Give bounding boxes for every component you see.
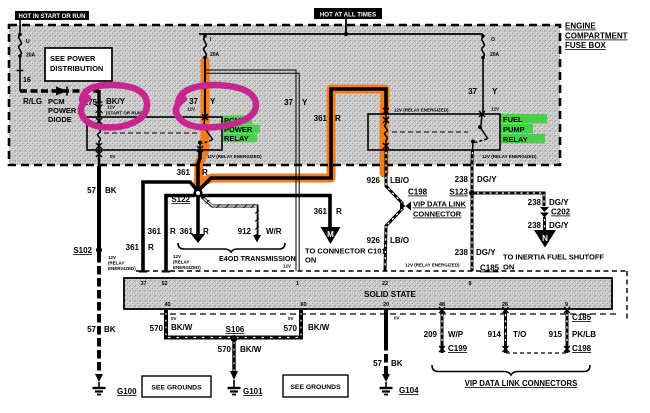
svg-text:12V (RELAY ENERGIZED): 12V (RELAY ENERGIZED) bbox=[207, 154, 262, 159]
svg-text:S122: S122 bbox=[171, 195, 190, 204]
svg-text:BK/W: BK/W bbox=[308, 323, 330, 332]
svg-text:37: 37 bbox=[468, 87, 477, 96]
svg-text:22: 22 bbox=[382, 281, 388, 287]
svg-text:TO CONNECTOR C101: TO CONNECTOR C101 bbox=[305, 247, 386, 256]
svg-text:R: R bbox=[148, 243, 154, 252]
svg-text:37: 37 bbox=[284, 98, 293, 107]
svg-text:209: 209 bbox=[424, 330, 438, 339]
svg-text:G104: G104 bbox=[399, 386, 419, 395]
svg-text:HOT AT ALL TIMES: HOT AT ALL TIMES bbox=[320, 12, 376, 19]
svg-text:C202: C202 bbox=[551, 208, 571, 217]
svg-text:VIP DATA LINK: VIP DATA LINK bbox=[413, 200, 467, 209]
svg-text:361: 361 bbox=[314, 114, 328, 123]
svg-text:361: 361 bbox=[180, 227, 194, 236]
svg-text:W/P: W/P bbox=[448, 330, 464, 339]
svg-text:37: 37 bbox=[140, 281, 146, 287]
svg-text:57: 57 bbox=[373, 359, 382, 368]
svg-text:Y: Y bbox=[492, 87, 498, 96]
svg-text:DIODE: DIODE bbox=[48, 115, 72, 124]
svg-text:SEE GROUNDS: SEE GROUNDS bbox=[290, 384, 341, 391]
svg-text:52: 52 bbox=[161, 281, 167, 287]
svg-text:926: 926 bbox=[367, 236, 381, 245]
svg-text:COMPARTMENT: COMPARTMENT bbox=[565, 32, 628, 41]
svg-text:ENERGIZED): ENERGIZED) bbox=[108, 266, 136, 271]
svg-text:8: 8 bbox=[468, 281, 471, 287]
svg-text:238: 238 bbox=[455, 248, 469, 257]
svg-text:E4OD TRANSMISSION: E4OD TRANSMISSION bbox=[219, 254, 296, 263]
svg-text:Y: Y bbox=[210, 97, 216, 106]
svg-text:238: 238 bbox=[455, 175, 469, 184]
svg-text:Y: Y bbox=[302, 98, 308, 107]
svg-text:570: 570 bbox=[218, 345, 232, 354]
svg-text:12V: 12V bbox=[187, 107, 195, 112]
svg-text:W/R: W/R bbox=[266, 227, 282, 236]
svg-text:12V: 12V bbox=[283, 264, 291, 269]
svg-text:361: 361 bbox=[177, 168, 191, 177]
svg-text:238: 238 bbox=[528, 198, 542, 207]
svg-text:12V: 12V bbox=[491, 107, 499, 112]
svg-text:FUSE BOX: FUSE BOX bbox=[565, 41, 607, 50]
svg-text:C198: C198 bbox=[572, 344, 592, 353]
svg-text:0V: 0V bbox=[171, 316, 177, 321]
svg-text:12V (RELAY ENERGIZED): 12V (RELAY ENERGIZED) bbox=[482, 154, 537, 159]
svg-text:R: R bbox=[202, 168, 208, 177]
svg-text:BK: BK bbox=[104, 325, 116, 334]
svg-text:BK: BK bbox=[105, 186, 117, 195]
svg-text:O: O bbox=[491, 37, 495, 43]
svg-text:R: R bbox=[336, 207, 342, 216]
svg-text:361: 361 bbox=[314, 207, 328, 216]
svg-text:BK/W: BK/W bbox=[171, 323, 193, 332]
svg-text:12V: 12V bbox=[107, 105, 115, 110]
svg-text:R/LG: R/LG bbox=[23, 97, 42, 106]
svg-text:20A: 20A bbox=[26, 53, 36, 59]
svg-text:G101: G101 bbox=[243, 387, 263, 396]
svg-text:BK: BK bbox=[391, 359, 403, 368]
svg-text:361: 361 bbox=[126, 243, 140, 252]
svg-text:S106: S106 bbox=[226, 325, 245, 334]
svg-text:FUEL: FUEL bbox=[503, 115, 523, 124]
svg-text:LB/O: LB/O bbox=[390, 176, 409, 185]
svg-text:RELAY: RELAY bbox=[503, 135, 528, 144]
svg-text:SOLID STATE: SOLID STATE bbox=[364, 290, 416, 299]
svg-text:12V (RELAY ENERGIZED): 12V (RELAY ENERGIZED) bbox=[394, 108, 449, 113]
svg-text:DG/Y: DG/Y bbox=[549, 221, 569, 230]
svg-text:57: 57 bbox=[87, 325, 96, 334]
svg-text:PCM: PCM bbox=[48, 97, 65, 106]
svg-text:T/O: T/O bbox=[513, 330, 526, 339]
svg-text:12V: 12V bbox=[108, 255, 116, 260]
svg-text:DG/Y: DG/Y bbox=[549, 198, 569, 207]
svg-text:(RELAY: (RELAY bbox=[173, 260, 189, 265]
svg-text:ON: ON bbox=[305, 256, 316, 265]
svg-text:PUMP: PUMP bbox=[503, 125, 525, 134]
svg-text:LB/O: LB/O bbox=[390, 236, 409, 245]
svg-text:SEE POWER: SEE POWER bbox=[50, 54, 96, 63]
svg-text:238: 238 bbox=[528, 221, 542, 230]
svg-text:1: 1 bbox=[296, 281, 299, 287]
svg-text:37: 37 bbox=[189, 97, 198, 106]
svg-text:DISTRIBUTION: DISTRIBUTION bbox=[50, 64, 103, 73]
svg-text:0V: 0V bbox=[110, 154, 116, 159]
svg-text:0V: 0V bbox=[288, 316, 294, 321]
svg-text:POWER: POWER bbox=[48, 106, 77, 115]
svg-text:S123: S123 bbox=[449, 188, 468, 197]
svg-text:ENGINE: ENGINE bbox=[565, 22, 596, 31]
svg-text:20: 20 bbox=[383, 302, 389, 308]
svg-text:0V: 0V bbox=[394, 316, 400, 321]
svg-text:ENERGIZED): ENERGIZED) bbox=[173, 265, 201, 270]
svg-text:DG/Y: DG/Y bbox=[476, 248, 496, 257]
svg-text:RELAY: RELAY bbox=[224, 134, 249, 143]
svg-text:60: 60 bbox=[300, 302, 306, 308]
svg-text:S102: S102 bbox=[73, 246, 92, 255]
svg-text:BK/W: BK/W bbox=[240, 345, 262, 354]
svg-text:915: 915 bbox=[549, 330, 563, 339]
svg-text:570: 570 bbox=[284, 324, 298, 333]
svg-text:TO INERTIA FUEL SHUTOFF: TO INERTIA FUEL SHUTOFF bbox=[503, 253, 604, 262]
svg-text:G100: G100 bbox=[117, 387, 137, 396]
svg-text:R: R bbox=[203, 227, 209, 236]
svg-text:9: 9 bbox=[565, 302, 568, 308]
svg-text:20A: 20A bbox=[490, 52, 500, 58]
svg-text:12V: 12V bbox=[173, 254, 181, 259]
svg-text:PK/LB: PK/LB bbox=[572, 330, 596, 339]
svg-text:40: 40 bbox=[164, 302, 170, 308]
svg-text:16: 16 bbox=[23, 77, 31, 84]
svg-text:C199: C199 bbox=[448, 344, 468, 353]
svg-text:M: M bbox=[327, 230, 334, 239]
svg-text:(RELAY: (RELAY bbox=[108, 261, 124, 266]
svg-text:SEE GROUNDS: SEE GROUNDS bbox=[151, 385, 202, 392]
svg-text:12V (RELAY ENERGIZED): 12V (RELAY ENERGIZED) bbox=[405, 263, 460, 268]
svg-text:912: 912 bbox=[238, 227, 252, 236]
svg-text:570: 570 bbox=[150, 324, 164, 333]
svg-text:361: 361 bbox=[148, 227, 162, 236]
svg-text:N: N bbox=[542, 234, 548, 243]
svg-text:914: 914 bbox=[488, 330, 502, 339]
svg-text:U: U bbox=[26, 39, 30, 45]
svg-text:C198: C198 bbox=[408, 188, 428, 197]
svg-text:20A: 20A bbox=[210, 52, 220, 58]
svg-text:(START OR RUN): (START OR RUN) bbox=[106, 111, 143, 116]
svg-text:DG/Y: DG/Y bbox=[477, 175, 497, 184]
svg-text:926: 926 bbox=[367, 176, 381, 185]
svg-text:CONNECTOR: CONNECTOR bbox=[413, 210, 462, 219]
svg-text:HOT IN START OR RUN: HOT IN START OR RUN bbox=[19, 14, 86, 20]
svg-text:R: R bbox=[335, 114, 341, 123]
svg-text:57: 57 bbox=[87, 186, 96, 195]
svg-text:VIP DATA LINK CONNECTORS: VIP DATA LINK CONNECTORS bbox=[465, 379, 578, 388]
svg-text:R: R bbox=[170, 227, 176, 236]
svg-text:ON: ON bbox=[503, 263, 514, 272]
svg-text:C185: C185 bbox=[572, 313, 592, 322]
